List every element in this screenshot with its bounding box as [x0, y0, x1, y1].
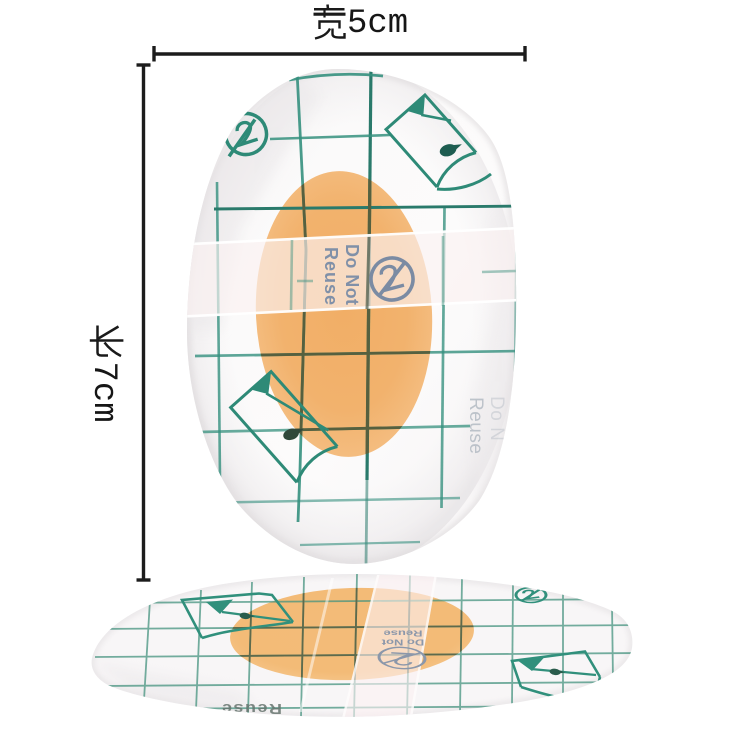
svg-text:Do N: Do N — [486, 396, 507, 441]
svg-text:7cm: 7cm — [84, 362, 122, 423]
svg-text:Reuse: Reuse — [384, 628, 423, 637]
svg-text:Reuse: Reuse — [321, 247, 341, 306]
svg-text:Do Not: Do Not — [381, 637, 424, 646]
svg-text:Do Not: Do Not — [342, 244, 362, 305]
svg-text:Reuse: Reuse — [465, 397, 486, 454]
svg-text:5cm: 5cm — [347, 5, 408, 43]
svg-text:Reuse: Reuse — [221, 700, 282, 716]
